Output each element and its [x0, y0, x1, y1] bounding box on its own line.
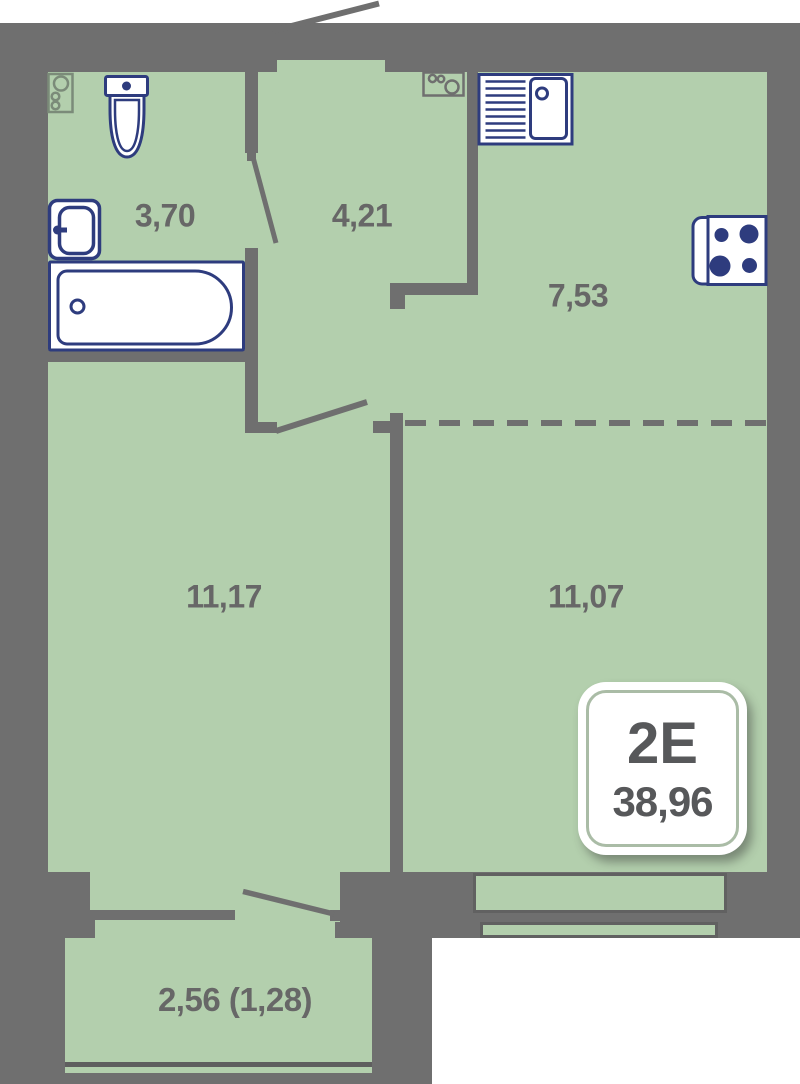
bathtub-icon [50, 262, 244, 350]
room-area-label-room-1: 11,17 [186, 579, 262, 616]
room-area-label-balcony: 2,56 (1,28) [158, 981, 312, 1019]
entrance-door-swing [272, 4, 379, 32]
floor-plan: 3,70 4,21 7,53 11,17 11,07 2,56 (1,28) 2… [0, 0, 800, 1084]
room-area-label-bathroom: 3,70 [135, 198, 195, 235]
bathroom-door-swing [254, 159, 277, 243]
unit-info-badge: 2E 38,96 [578, 682, 747, 855]
kitchen-sink-icon [479, 75, 572, 145]
unit-type-label: 2E [627, 715, 698, 773]
washing-machine-icon [49, 74, 73, 112]
room-area-label-kitchen: 7,53 [548, 278, 608, 315]
room-area-label-room-2: 11,07 [548, 579, 624, 616]
sink-icon [50, 201, 100, 259]
room-area-label-hallway: 4,21 [332, 198, 392, 235]
fixtures-layer [0, 0, 800, 1084]
appliance-icon [424, 73, 464, 96]
balcony-door-swing [243, 892, 334, 915]
room-door-swing [276, 402, 367, 431]
stove-icon [693, 217, 766, 285]
toilet-icon [106, 77, 148, 158]
total-area-label: 38,96 [612, 781, 712, 823]
